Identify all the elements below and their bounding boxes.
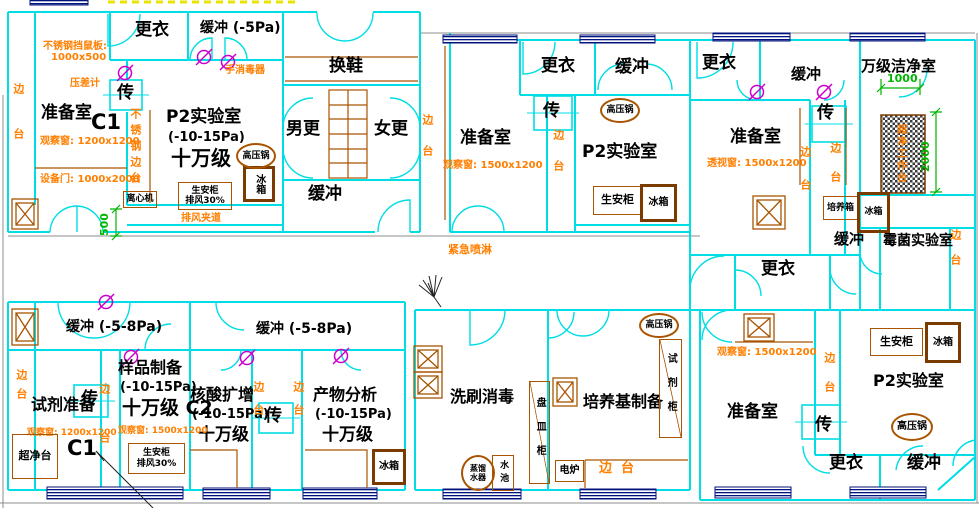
room-label-p2lab-c: P2实验室	[582, 143, 657, 161]
clean-bench-f: 超净台	[12, 434, 58, 479]
sink-label-g: 水池	[492, 455, 514, 491]
room-label-huanchong-d: 缓冲	[791, 66, 821, 82]
electric-stove-g: 电炉	[555, 460, 584, 482]
room-label-huanchong-a: 缓冲 (-5Pa)	[200, 21, 281, 36]
note-bench-f-left: 边台	[15, 369, 27, 407]
room-label-zhunbeishi-a: 准备室	[41, 104, 92, 122]
centrifuge-a: 离心机	[123, 191, 157, 208]
room-label-huanchong-b: 缓冲	[308, 185, 342, 203]
room-label-genyi-d: 更衣	[702, 54, 736, 72]
note-equip-door-a: 设备门: 1000x2000	[40, 175, 140, 186]
class-chanwu: 十万级	[322, 426, 373, 444]
note-bench-g: 边 台	[599, 462, 634, 476]
class-p2lab-a: 十万级	[171, 148, 231, 170]
note-view-window-d: 透视窗: 1500x1200	[707, 159, 807, 170]
note-bench-d1: 边台	[799, 146, 811, 212]
room-label-hesuan: 核酸扩增	[190, 386, 254, 403]
note-rodent-board-size: 1000x500	[51, 53, 106, 64]
room-label-chanwu: 产物分析	[313, 386, 377, 403]
room-code-c1-f: C1	[67, 437, 97, 460]
pressure-yangpin: (-10-15Pa)	[120, 381, 197, 395]
autoclave-c: 高压锅	[600, 98, 640, 123]
room-label-zhunbeishi-c: 准备室	[460, 129, 511, 147]
note-emergency-shower: 紧急喷淋	[448, 244, 492, 256]
biosafety-cabinet-f: 生安柜 排风30%	[128, 443, 185, 474]
autoclave-a: 高压锅	[236, 143, 276, 169]
fridge-h: 冰箱	[925, 322, 961, 363]
pass-box-char-f1: 传	[81, 390, 98, 408]
room-label-genyi-mid: 更衣	[761, 260, 795, 278]
room-label-peiyangji: 培养基制备	[583, 393, 663, 410]
room-label-yangpin: 样品制备	[118, 359, 182, 376]
room-label-huanchong-f2: 缓冲 (-5-8Pa)	[256, 322, 352, 337]
room-label-huanchong-c: 缓冲	[615, 58, 649, 76]
room-label-nvgeng: 女更	[374, 120, 408, 138]
room-label-genyi-h: 更衣	[829, 454, 863, 472]
note-bench-d2: 边台	[829, 142, 841, 200]
pass-box-char-d: 传	[817, 104, 834, 122]
fridge-a: 冰箱	[243, 166, 275, 202]
room-label-huanchong-f1: 缓冲 (-5-8Pa)	[66, 320, 162, 335]
note-obs-window-f2: 观察窗: 1500x1200	[118, 427, 208, 437]
fridge-f: 冰箱	[372, 449, 406, 485]
note-bench-e: 边台	[949, 229, 961, 279]
room-label-huanchong-h: 缓冲	[907, 454, 941, 472]
room-code-c1-a: C1	[91, 111, 121, 134]
biosafety-cabinet-a: 生安柜 排风30%	[178, 182, 232, 210]
note-bench-f-strip2: 边台	[252, 381, 264, 427]
note-clean-workbench: 超净工作台	[894, 124, 905, 184]
pass-box-char-a: 传	[117, 84, 134, 102]
note-bench-c: 边台	[552, 129, 564, 191]
pressure-chanwu: (-10-15Pa)	[315, 408, 392, 422]
room-label-xishua: 洗刷消毒	[450, 388, 514, 405]
room-label-genyi-a: 更衣	[135, 21, 169, 39]
biosafety-cabinet-c: 生安柜	[593, 186, 642, 215]
note-hand-sanitizer: 手消毒器	[225, 66, 265, 77]
room-label-genyi-c: 更衣	[541, 57, 575, 75]
dish-cabinet-g: 盘皿柜	[529, 381, 550, 484]
pass-box-char-h: 传	[815, 416, 832, 434]
dim-1000: 1000	[887, 73, 918, 85]
dim-2000: 2000	[920, 141, 932, 172]
note-bench-f-strip3: 边台	[292, 381, 304, 427]
room-label-zhunbeishi-d: 准备室	[730, 128, 781, 146]
pressure-p2lab-a: (-10-15Pa)	[168, 131, 245, 145]
cad-floorplan-canvas: 更衣缓冲 (-5Pa)准备室C1P2实验室(-10-15Pa)十万级传换鞋男更女…	[0, 0, 979, 508]
pass-box-char-f2: 传	[265, 407, 282, 425]
note-bench-h-strip: 边台	[823, 352, 835, 410]
autoclave-h: 高压锅	[891, 413, 933, 441]
pass-box-char-c: 传	[543, 102, 560, 120]
room-label-meijun-lab: 霉菌实验室	[883, 234, 953, 249]
note-obs-window-a: 观察窗: 1200x1200	[40, 137, 140, 148]
note-obs-window-h: 观察窗: 1500x1200	[717, 348, 817, 359]
note-pressure-gauge: 压差计	[70, 79, 100, 90]
water-distiller-g: 蒸馏 水器	[461, 455, 495, 491]
fridge-c: 冰箱	[640, 184, 677, 222]
dim-500: 500	[99, 213, 111, 236]
room-label-zhunbeishi-h: 准备室	[727, 403, 778, 421]
room-label-huanchong-e: 缓冲	[834, 231, 864, 247]
note-bench-a-left: 边台	[12, 83, 24, 173]
reagent-cabinet-g: 试剂柜	[659, 339, 682, 438]
fridge-e: 冰箱	[857, 192, 890, 233]
room-label-p2lab-a: P2实验室	[166, 108, 241, 126]
benches-and-counters	[35, 46, 846, 488]
biosafety-cabinet-h: 生安柜	[870, 328, 923, 356]
note-obs-window-c: 观察窗: 1500x1200	[443, 161, 543, 172]
room-label-p2lab-h: P2实验室	[873, 372, 944, 389]
incubator-e: 培养箱	[823, 196, 858, 220]
note-exhaust-passage: 排风夹道	[181, 214, 221, 225]
room-label-nangeng: 男更	[286, 120, 320, 138]
note-bench-f-strip1: 边台	[98, 383, 110, 481]
note-ss-bench-a: 不锈钢边台	[129, 108, 141, 188]
note-bench-corridor-bc: 边台	[421, 114, 433, 176]
autoclave-g: 高压锅	[639, 313, 679, 338]
room-label-huanxie: 换鞋	[329, 57, 363, 75]
